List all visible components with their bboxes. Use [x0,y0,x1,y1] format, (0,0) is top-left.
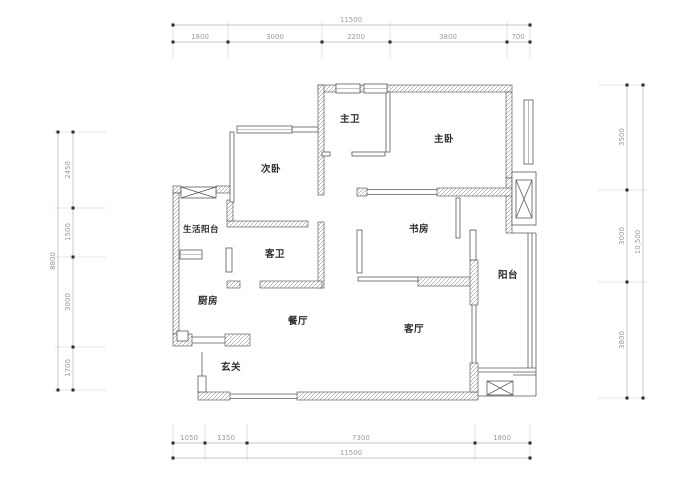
dim-top-seg-5: 700 [511,33,524,41]
bay-window-icon [524,100,533,164]
room-label-second-bedroom: 次卧 [261,163,281,175]
dim-top-seg-2: 3000 [266,33,284,41]
dim-bottom-seg-1: 1050 [180,434,198,442]
laundry-counter-icon [180,250,202,259]
dim-right-seg-2: 3000 [618,227,626,245]
room-label-guest-bath: 客卫 [264,248,285,260]
room-label-entry: 玄关 [221,361,241,373]
dim-left-seg-2: 1500 [64,223,72,241]
bedroom2-window-icon [237,126,292,133]
room-label-utility-balcony: 生活阳台 [183,224,219,235]
room-label-balcony: 阳台 [498,269,518,281]
floor-plan-canvas: 主卫 主卧 次卧 生活阳台 客卫 书房 阳台 厨房 餐厅 客厅 玄关 11500… [0,0,700,480]
exterior-walls [173,85,512,400]
room-label-master-bedroom: 主卧 [434,133,454,145]
dim-left-seg-3: 3000 [64,293,72,311]
dim-top-seg-4: 3800 [439,33,457,41]
dim-top-seg-1: 1800 [191,33,209,41]
laundry-x-window-icon [181,187,216,198]
dim-left-total: 8800 [49,252,57,270]
dim-top-total: 11500 [340,16,362,24]
top-window-2-icon [364,84,387,93]
window-symbols [180,84,533,395]
dimension-chain-right: 3500 3000 3800 10,500 [598,84,648,400]
dim-bottom-seg-3: 7300 [352,434,370,442]
dim-top-seg-3: 2200 [347,33,365,41]
dim-bottom-seg-2: 1350 [217,434,235,442]
room-label-study: 书房 [409,223,429,235]
top-window-1-icon [336,84,360,93]
dim-left-seg-4: 1700 [64,359,72,377]
room-label-living: 客厅 [403,323,424,335]
dim-right-seg-1: 3500 [618,128,626,146]
dim-bottom-total: 11500 [340,449,362,457]
balcony-railing [478,233,536,396]
dim-left-seg-1: 2450 [64,161,72,179]
room-label-kitchen: 厨房 [198,295,218,307]
floor-plan-page: 主卫 主卧 次卧 生活阳台 客卫 书房 阳台 厨房 餐厅 客厅 玄关 11500… [0,0,700,480]
dim-bottom-seg-4: 1800 [493,434,511,442]
dim-right-seg-3: 3800 [618,331,626,349]
elevator-shaft [512,172,536,225]
balcony-x-window-icon [487,381,513,395]
room-label-master-bath: 主卫 [340,113,360,125]
dim-right-total: 10,500 [634,230,642,255]
dimension-chain-top: 11500 1800 3000 2200 3800 700 [172,16,532,58]
dimension-chain-left: 2450 1500 3000 1700 8800 [49,131,106,392]
dimension-chain-bottom: 1050 1350 7300 1800 11500 [172,424,532,461]
room-label-dining: 餐厅 [287,315,308,327]
